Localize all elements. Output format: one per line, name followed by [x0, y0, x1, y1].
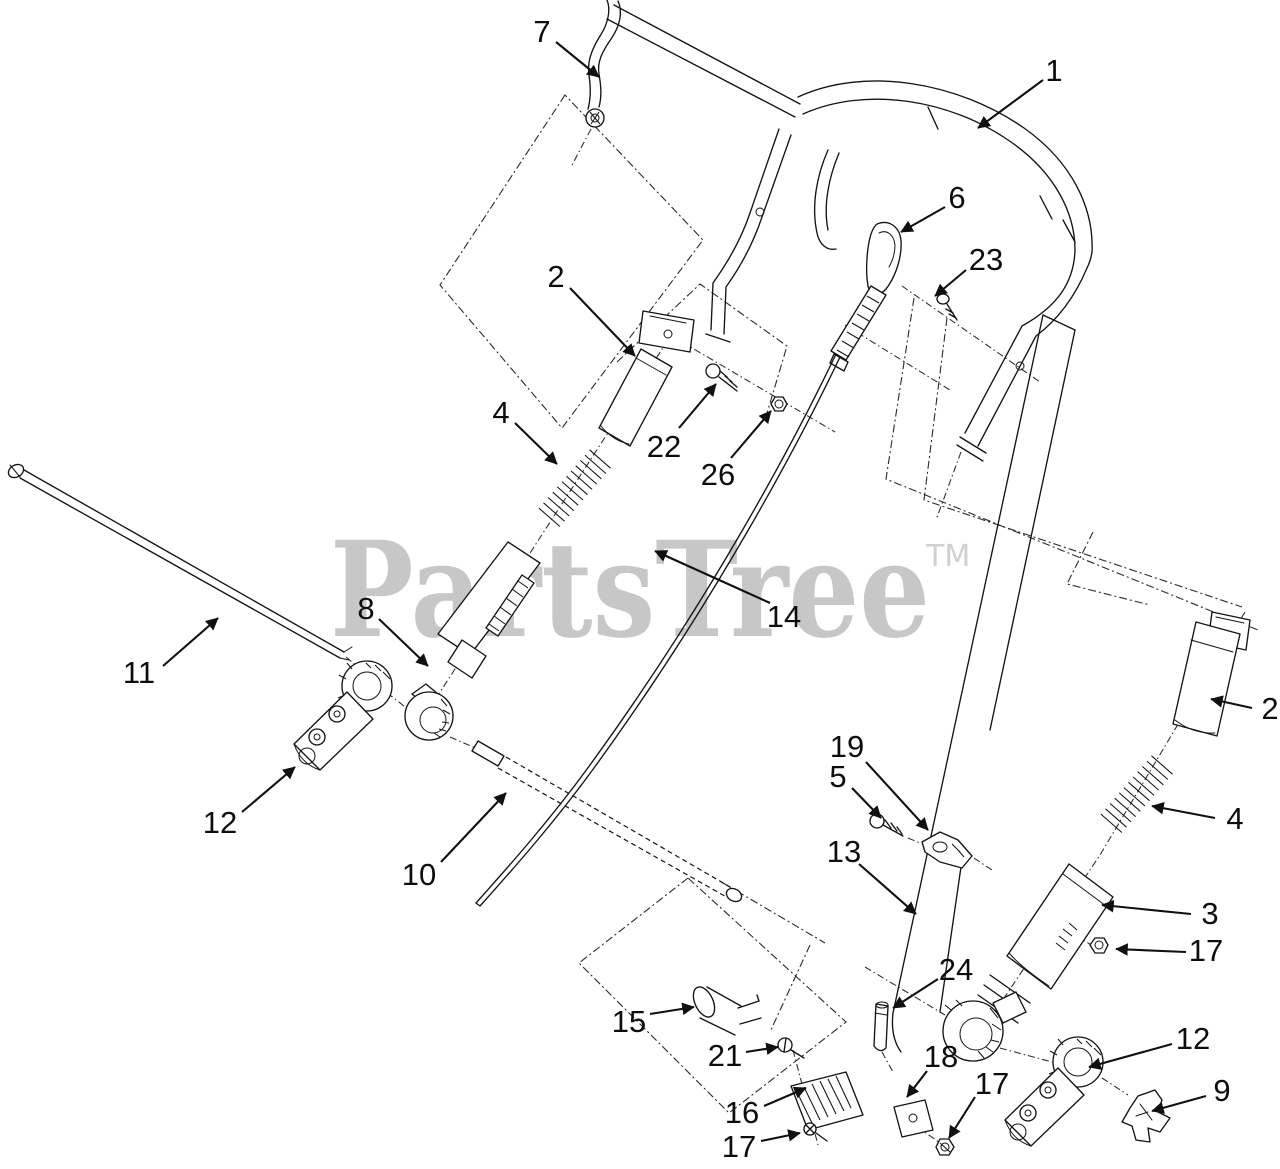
callout-label-4: 4	[492, 395, 509, 430]
callout-label-21: 21	[708, 1038, 742, 1073]
parts-diagram-page: PartsTree TM	[0, 0, 1280, 1169]
callout-label-24: 24	[939, 952, 973, 987]
watermark: PartsTree TM	[330, 513, 970, 668]
watermark-tm: TM	[925, 539, 970, 574]
callout-label-5: 5	[829, 759, 846, 794]
callout-label-2: 2	[547, 259, 564, 294]
callout-label-10: 10	[402, 857, 436, 892]
callout-label-17: 17	[722, 1129, 756, 1164]
callout-label-22: 22	[647, 429, 681, 464]
part-nut-18	[894, 1100, 933, 1137]
callout-label-6: 6	[948, 180, 965, 215]
part-nut-26	[771, 397, 787, 411]
callout-label-17: 17	[1189, 933, 1223, 968]
callout-label-3: 3	[1201, 896, 1218, 931]
callout-label-1: 1	[1045, 53, 1062, 88]
callout-label-7: 7	[533, 14, 550, 49]
callout-label-8: 8	[357, 591, 374, 626]
callout-label-4: 4	[1226, 801, 1243, 836]
watermark-text: PartsTree	[330, 513, 930, 668]
callout-label-9: 9	[1213, 1073, 1230, 1108]
callout-label-15: 15	[612, 1004, 646, 1039]
callout-label-26: 26	[701, 457, 735, 492]
callout-label-11: 11	[123, 655, 155, 690]
callout-label-12: 12	[203, 805, 237, 840]
callout-label-13: 13	[827, 834, 861, 869]
callout-label-14: 14	[767, 599, 801, 634]
diagram-svg: PartsTree TM	[0, 0, 1280, 1169]
callout-label-18: 18	[924, 1039, 958, 1074]
callout-label-16: 16	[725, 1095, 759, 1130]
part-pin-24	[874, 1002, 888, 1051]
callout-label-23: 23	[969, 242, 1003, 277]
callout-label-12: 12	[1176, 1021, 1210, 1056]
callout-label-17: 17	[975, 1066, 1009, 1101]
callout-label-2: 2	[1261, 691, 1278, 726]
